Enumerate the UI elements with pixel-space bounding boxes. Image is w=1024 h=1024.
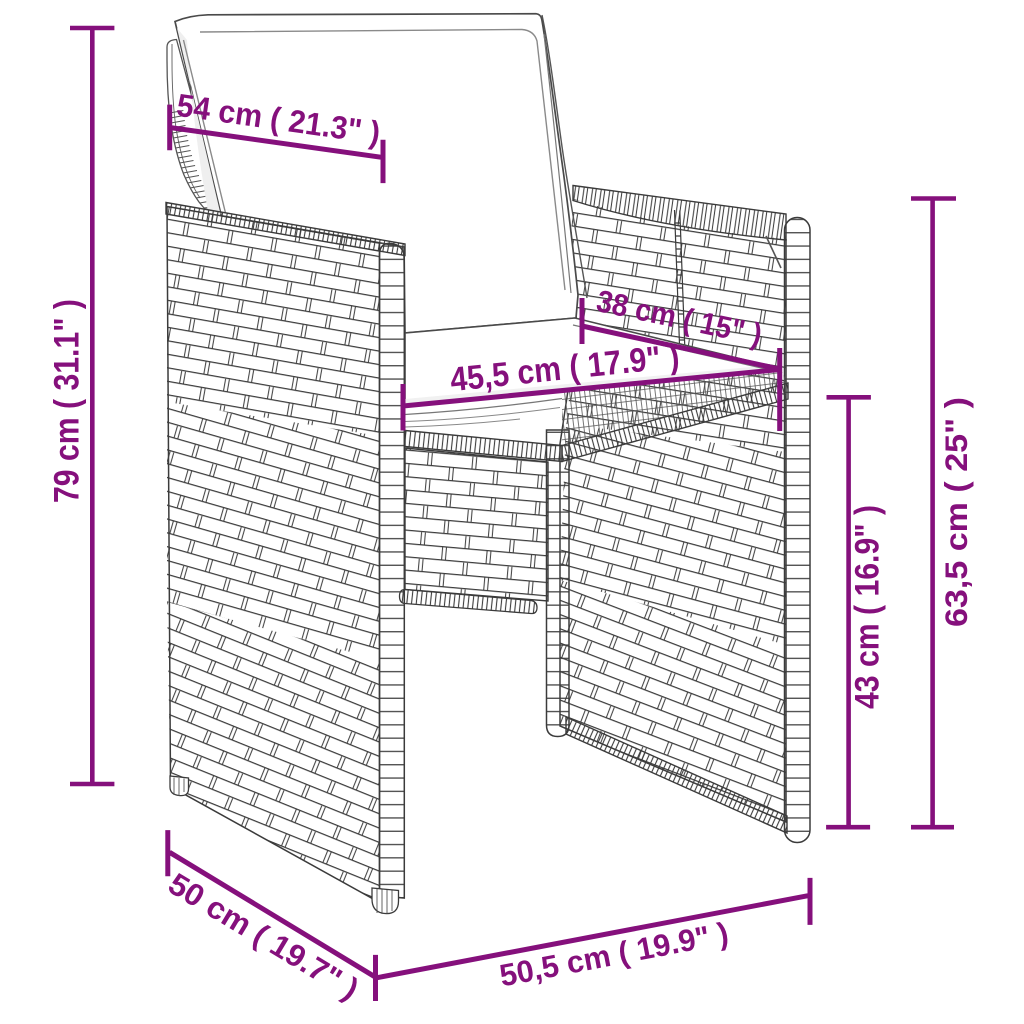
svg-text:43 cm ( 16.9" ): 43 cm ( 16.9" ) xyxy=(849,505,887,709)
svg-text:63,5 cm ( 25" ): 63,5 cm ( 25" ) xyxy=(938,397,974,627)
svg-text:79 cm ( 31.1" ): 79 cm ( 31.1" ) xyxy=(48,299,87,503)
